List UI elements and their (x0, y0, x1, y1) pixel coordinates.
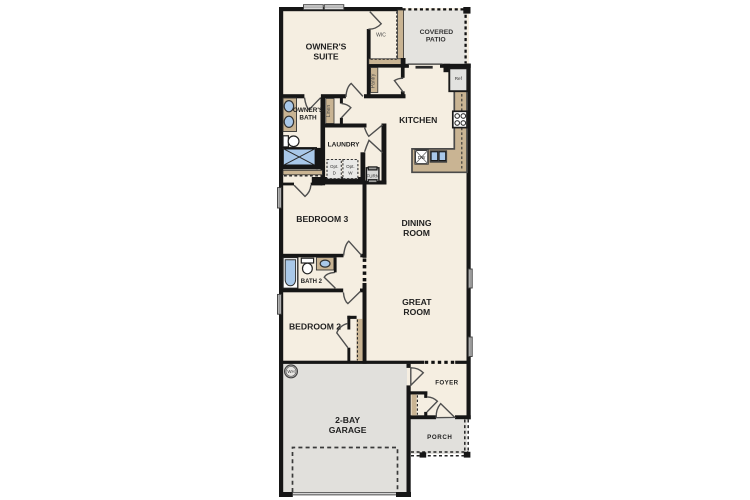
svg-text:PORCH: PORCH (427, 434, 452, 441)
svg-text:W: W (348, 170, 353, 175)
svg-text:COVERED: COVERED (420, 29, 454, 36)
svg-text:SUITE: SUITE (313, 52, 339, 62)
svg-text:Linen: Linen (326, 105, 332, 117)
svg-text:LAUNDRY: LAUNDRY (328, 141, 361, 148)
svg-text:DW: DW (418, 155, 426, 160)
svg-text:BATH 2: BATH 2 (301, 279, 323, 285)
svg-text:FURN: FURN (367, 173, 380, 178)
svg-text:WIC: WIC (376, 33, 386, 39)
svg-text:Pantry: Pantry (370, 73, 376, 88)
svg-text:KITCHEN: KITCHEN (399, 115, 437, 125)
svg-text:Opt.: Opt. (330, 164, 339, 169)
svg-text:2-BAY: 2-BAY (335, 415, 360, 425)
svg-text:ROOM: ROOM (403, 307, 430, 317)
svg-text:BEDROOM 2: BEDROOM 2 (289, 321, 341, 331)
svg-text:BATH: BATH (299, 114, 317, 121)
svg-text:OWNER'S: OWNER'S (293, 107, 324, 114)
svg-text:GREAT: GREAT (402, 297, 432, 307)
svg-text:DINING: DINING (401, 218, 431, 228)
svg-text:ROOM: ROOM (403, 228, 430, 238)
svg-text:WH: WH (287, 369, 294, 374)
svg-text:Ref: Ref (455, 76, 463, 81)
svg-text:FOYER: FOYER (435, 380, 458, 387)
svg-text:PATIO: PATIO (426, 37, 446, 44)
svg-text:BEDROOM 3: BEDROOM 3 (296, 214, 348, 224)
svg-text:Opt.: Opt. (346, 164, 355, 169)
svg-text:OWNER'S: OWNER'S (306, 42, 347, 52)
svg-text:GARAGE: GARAGE (329, 425, 367, 435)
